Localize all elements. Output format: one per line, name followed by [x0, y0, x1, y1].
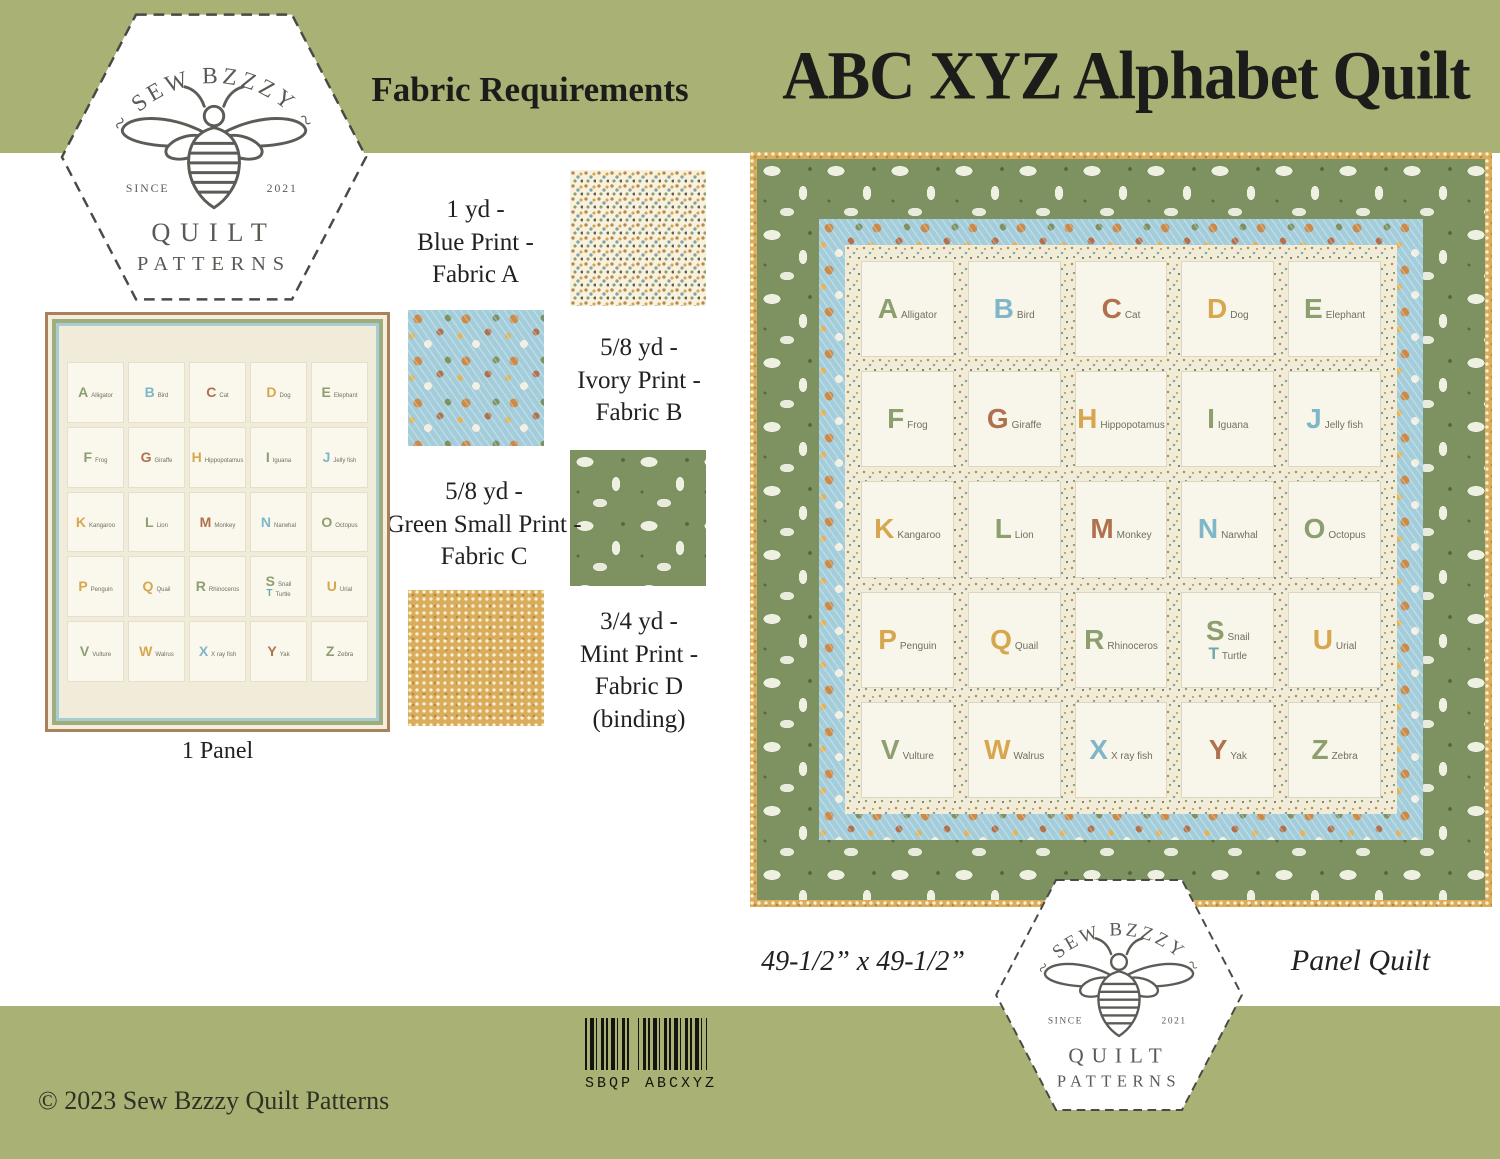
alphabet-row-bottom [65, 683, 370, 716]
quilt-block: OOctopus [311, 492, 368, 553]
quilt-block: NNarwhal [1181, 481, 1274, 577]
fabric-c-label: 5/8 yd - Green Small Print - Fabric C [383, 476, 585, 574]
quilt-block: ZZebra [311, 621, 368, 682]
alphabet-row-top [65, 328, 370, 361]
brand-logo: ~ SEW BZZZY ~ SINCE 2021 QUILT [58, 10, 370, 304]
bottom-band [0, 1006, 1500, 1159]
quilt-block: EElephant [1288, 261, 1381, 357]
quilt-block: GGiraffe [128, 427, 185, 488]
page-title: ABC XYZ Alphabet Quilt [758, 36, 1494, 116]
quilt-block: LLion [128, 492, 185, 553]
quilt-block: WWalrus [128, 621, 185, 682]
finished-quilt-image: AAlligator BBird [750, 152, 1492, 907]
quilt-type-label: Panel Quilt [1268, 944, 1453, 978]
barcode-bars [585, 1018, 707, 1070]
quilt-block: DDog [1181, 261, 1274, 357]
quilt-block: RRhinoceros [1075, 592, 1168, 688]
quilt-block: HHippopotamus [1075, 371, 1168, 467]
quilt-block: JJelly fish [311, 427, 368, 488]
fabric-b-label: 5/8 yd - Ivory Print - Fabric B [548, 332, 730, 430]
barcode-text: SBQP ABCXYZ [585, 1075, 707, 1092]
barcode: SBQP ABCXYZ [585, 1018, 707, 1092]
swatch-fabric-a [570, 170, 706, 306]
quilt-block: FFrog [67, 427, 124, 488]
quilt-block: MMonkey [189, 492, 246, 553]
logo-hexagon: ~ SEW BZZZY ~ SINCE 2021 QUILT [58, 10, 370, 304]
quilt-block: KKangaroo [67, 492, 124, 553]
quilt-block: SSnail TTurtle [1181, 592, 1274, 688]
quilt-block: SSnail TTurtle [250, 556, 307, 617]
quilt-block: MMonkey [1075, 481, 1168, 577]
logo-word-patterns: PATTERNS [137, 253, 291, 275]
quilt-block: QQuail [968, 592, 1061, 688]
quilt-block: PPenguin [67, 556, 124, 617]
quilt-block: GGiraffe [968, 371, 1061, 467]
quilt-center-blocks: AAlligator BBird [845, 245, 1397, 814]
quilt-block: BBird [128, 362, 185, 423]
logo-word-quilt: QUILT [151, 218, 276, 247]
quilt-block: AAlligator [67, 362, 124, 423]
logo-year: 2021 [267, 182, 298, 195]
logo-year: 2021 [1162, 1016, 1187, 1026]
quilt-block: BBird [968, 261, 1061, 357]
copyright-text: © 2023 Sew Bzzzy Quilt Patterns [38, 1086, 389, 1116]
quilt-block: YYak [1181, 702, 1274, 798]
quilt-block: UUrial [311, 556, 368, 617]
logo-since-label: SINCE [1048, 1016, 1083, 1026]
quilt-block: OOctopus [1288, 481, 1381, 577]
quilt-block: YYak [250, 621, 307, 682]
quilt-block: VVulture [67, 621, 124, 682]
logo-word-quilt: QUILT [1068, 1044, 1169, 1068]
quilt-block: RRhinoceros [189, 556, 246, 617]
fabric-a-label: 1 yd - Blue Print - Fabric A [378, 194, 573, 292]
quilt-block: NNarwhal [250, 492, 307, 553]
quilt-block: UUrial [1288, 592, 1381, 688]
quilt-block: IIguana [250, 427, 307, 488]
fabric-d-label: 3/4 yd - Mint Print - Fabric D (binding) [548, 606, 730, 736]
quilt-block: VVulture [861, 702, 954, 798]
fabric-requirements-heading: Fabric Requirements [352, 70, 708, 110]
quilt-block: PPenguin [861, 592, 954, 688]
quilt-block: AAlligator [861, 261, 954, 357]
swatch-fabric-d [408, 590, 544, 726]
quilt-block: DDog [250, 362, 307, 423]
logo-since-label: SINCE [126, 182, 170, 195]
quilt-border-green: AAlligator BBird [757, 159, 1485, 900]
panel-caption: 1 Panel [45, 738, 390, 765]
quilt-dimensions: 49-1/2” x 49-1/2” [748, 946, 978, 978]
quilt-block: KKangaroo [861, 481, 954, 577]
quilt-block: XX ray fish [189, 621, 246, 682]
quilt-block: CCat [1075, 261, 1168, 357]
quilt-block: WWalrus [968, 702, 1061, 798]
quilt-block: IIguana [1181, 371, 1274, 467]
logo-hexagon: ~ SEW BZZZY ~ SINCE 2021 QUILT [993, 876, 1245, 1114]
pattern-cover-page: ABC XYZ Alphabet Quilt Fabric Requiremen… [0, 0, 1500, 1159]
panel-block-grid: AAlligator BBird [65, 361, 370, 683]
quilt-block: JJelly fish [1288, 371, 1381, 467]
quilt-block: QQuail [128, 556, 185, 617]
swatch-fabric-c [570, 450, 706, 586]
quilt-block: ZZebra [1288, 702, 1381, 798]
brand-logo: ~ SEW BZZZY ~ SINCE 2021 QUILT [993, 876, 1245, 1114]
quilt-block: HHippopotamus [189, 427, 246, 488]
logo-word-patterns: PATTERNS [1057, 1071, 1181, 1090]
quilt-block: FFrog [861, 371, 954, 467]
quilt-block: CCat [189, 362, 246, 423]
swatch-fabric-b [408, 310, 544, 446]
quilt-block: LLion [968, 481, 1061, 577]
quilt-border-blue: AAlligator BBird [819, 219, 1423, 840]
quilt-block: EElephant [311, 362, 368, 423]
quilt-block: XX ray fish [1075, 702, 1168, 798]
panel-preview: AAlligator BBird [45, 312, 390, 732]
